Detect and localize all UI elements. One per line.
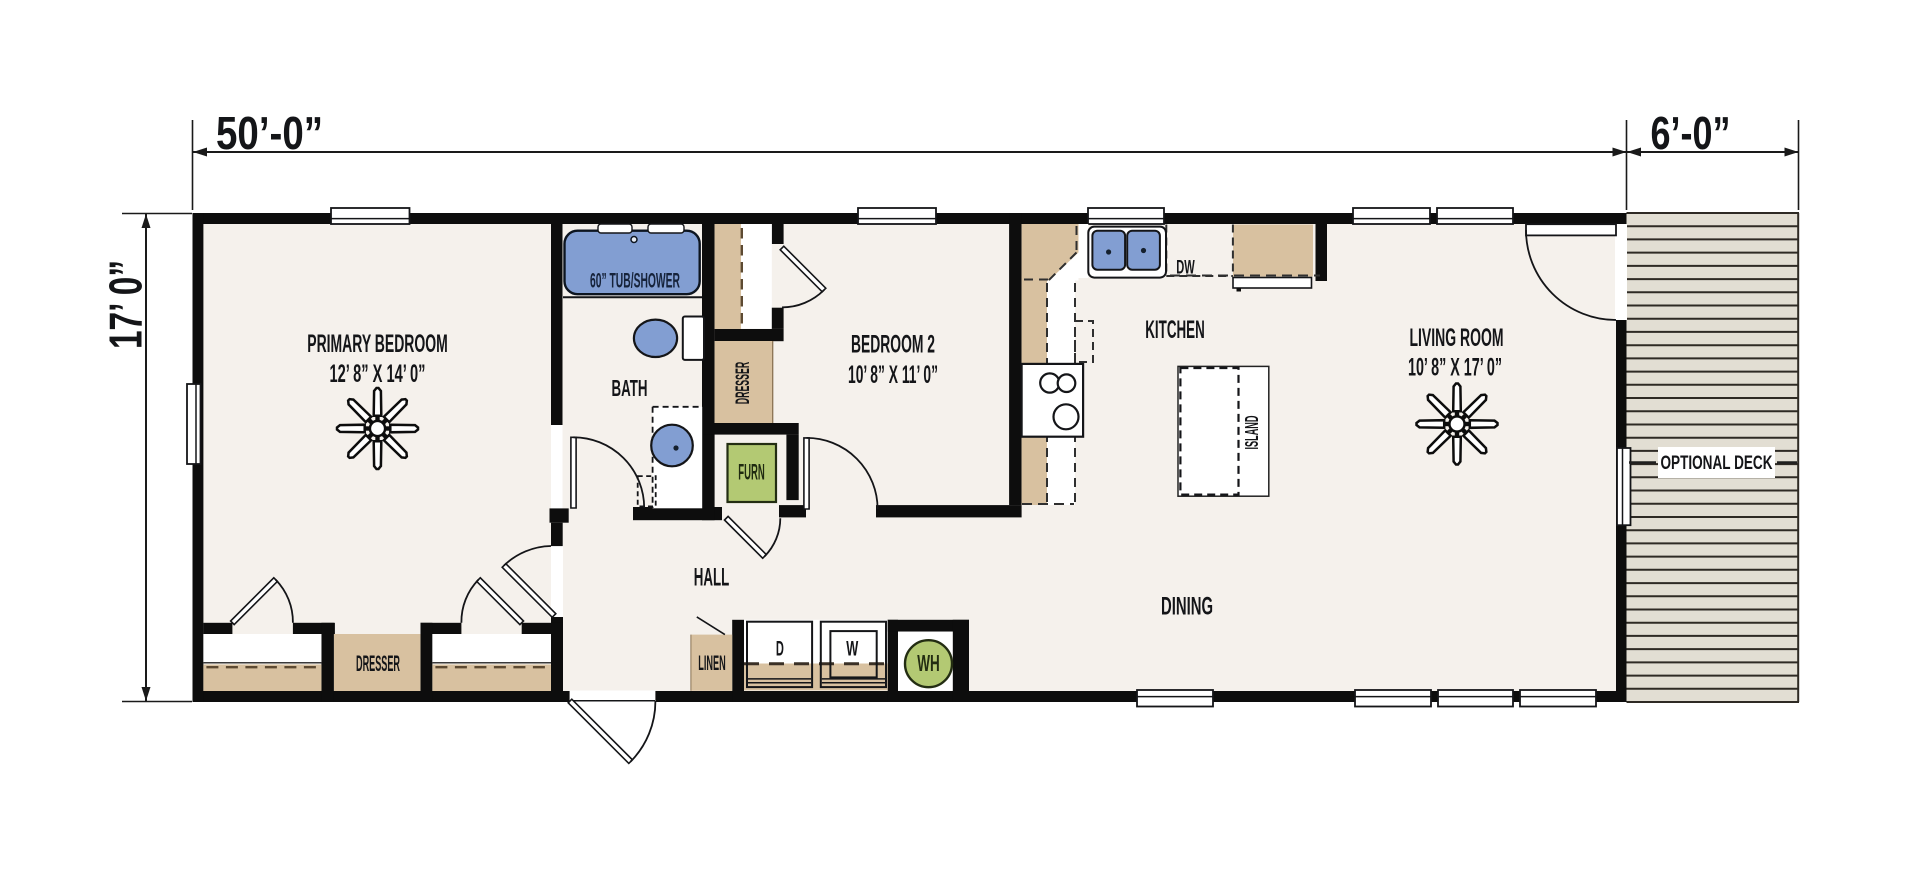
svg-text:DRESSER: DRESSER [732,362,754,405]
svg-text:60” TUB/SHOWER: 60” TUB/SHOWER [590,268,680,292]
svg-text:50’-0”: 50’-0” [216,107,323,159]
svg-text:HALL: HALL [694,564,730,592]
svg-text:LINEN: LINEN [698,652,726,675]
svg-text:LIVING ROOM: LIVING ROOM [1410,324,1504,352]
svg-text:12’ 8” X 14’ 0”: 12’ 8” X 14’ 0” [330,360,426,388]
svg-text:10’ 8” X 11’ 0”: 10’ 8” X 11’ 0” [848,361,938,389]
svg-text:PRIMARY BEDROOM: PRIMARY BEDROOM [307,330,448,358]
svg-text:WH: WH [917,650,940,676]
svg-text:10’ 8” X 17’ 0”: 10’ 8” X 17’ 0” [1408,354,1502,382]
svg-text:W: W [846,638,858,661]
svg-text:D: D [776,638,784,661]
svg-text:BEDROOM 2: BEDROOM 2 [851,330,935,358]
svg-text:OPTIONAL DECK: OPTIONAL DECK [1661,452,1773,474]
svg-text:DW: DW [1176,257,1195,279]
svg-text:ISLAND: ISLAND [1241,416,1262,450]
svg-text:BATH: BATH [612,375,648,401]
svg-text:17’ 0”: 17’ 0” [100,260,152,349]
svg-text:DINING: DINING [1161,593,1213,621]
svg-text:FURN: FURN [738,460,765,485]
svg-text:DRESSER: DRESSER [356,651,400,676]
svg-text:KITCHEN: KITCHEN [1145,316,1205,344]
svg-text:6’-0”: 6’-0” [1651,107,1731,159]
